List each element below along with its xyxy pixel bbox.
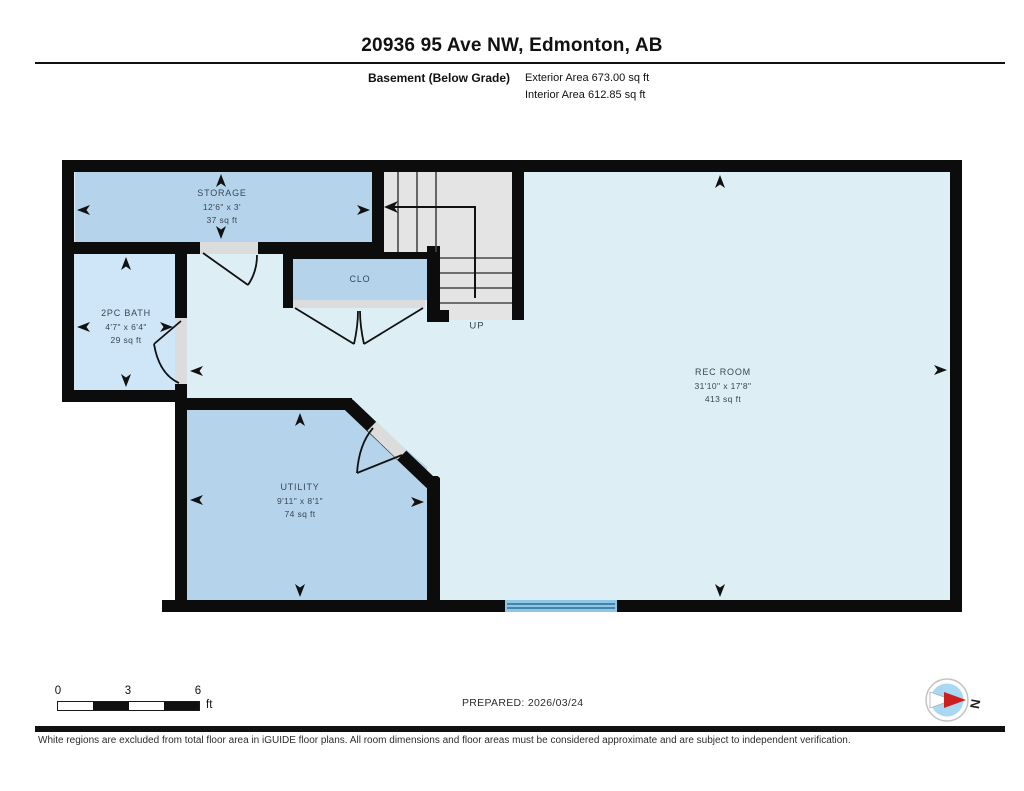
scale-tick-3: 3 bbox=[125, 685, 131, 697]
scale-segment bbox=[93, 702, 128, 710]
wall-utility-top bbox=[187, 398, 352, 410]
wall-storage-right bbox=[372, 172, 384, 242]
rec-room-dims: 31'10" x 17'8" bbox=[695, 381, 752, 391]
header-divider bbox=[35, 62, 1005, 64]
wall-bath-right-upper bbox=[175, 244, 187, 320]
page-title: 20936 95 Ave NW, Edmonton, AB bbox=[0, 35, 1024, 57]
prepared-date: PREPARED: 2026/03/24 bbox=[462, 697, 583, 709]
scale-segment bbox=[129, 702, 164, 710]
wall-stairs-right bbox=[512, 160, 524, 320]
bath-door-opening bbox=[175, 318, 187, 384]
disclaimer-text: White regions are excluded from total fl… bbox=[38, 735, 998, 746]
stairs-upper-floor bbox=[384, 172, 512, 252]
compass-north-letter: N bbox=[967, 698, 983, 710]
scale-segment bbox=[58, 702, 93, 710]
scale-tick-0: 0 bbox=[55, 685, 61, 697]
scale-tick-6: 6 bbox=[195, 685, 201, 697]
floor-plan-page: 20936 95 Ave NW, Edmonton, AB Basement (… bbox=[0, 0, 1024, 791]
closet-name: CLO bbox=[350, 274, 371, 284]
rec-room-name: REC ROOM bbox=[695, 367, 751, 377]
utility-area: 74 sq ft bbox=[284, 509, 315, 519]
utility-name: UTILITY bbox=[280, 482, 319, 492]
storage-door-opening bbox=[200, 242, 258, 254]
bath-label: 2PC BATH 4'7" x 6'4" 29 sq ft bbox=[101, 307, 151, 347]
footer-divider bbox=[35, 726, 1005, 732]
closet-label: CLO bbox=[350, 273, 371, 287]
rec-room-area: 413 sq ft bbox=[705, 394, 741, 404]
wall-closet-left bbox=[283, 252, 293, 308]
rec-room-label: REC ROOM 31'10" x 17'8" 413 sq ft bbox=[695, 366, 752, 406]
scale-unit: ft bbox=[206, 699, 212, 711]
scale-segment bbox=[164, 702, 199, 710]
wall-right bbox=[950, 160, 962, 612]
floor-label: Basement (Below Grade) bbox=[0, 71, 510, 85]
wall-bath-bottom bbox=[62, 390, 187, 402]
wall-utility-left bbox=[175, 402, 187, 600]
stairs-up-label: UP bbox=[469, 321, 484, 332]
floor-plan: STORAGE 12'6" x 3' 37 sq ft 2PC BATH 4'7… bbox=[62, 160, 962, 612]
storage-name: STORAGE bbox=[197, 188, 246, 198]
storage-label: STORAGE 12'6" x 3' 37 sq ft bbox=[197, 187, 246, 227]
wall-closet-top bbox=[283, 252, 440, 259]
interior-area: Interior Area 612.85 sq ft bbox=[525, 89, 645, 101]
wall-bottom bbox=[162, 600, 962, 612]
wall-stairs-stub bbox=[427, 310, 449, 322]
utility-label: UTILITY 9'11" x 8'1" 74 sq ft bbox=[277, 481, 323, 521]
wall-utility-right bbox=[427, 476, 440, 600]
scale-bar bbox=[57, 701, 200, 711]
storage-dims: 12'6" x 3' bbox=[203, 202, 241, 212]
storage-area: 37 sq ft bbox=[206, 215, 237, 225]
wall-left-upper bbox=[62, 160, 74, 402]
closet-door-opening bbox=[293, 300, 425, 308]
compass: N bbox=[908, 672, 1000, 730]
utility-dims: 9'11" x 8'1" bbox=[277, 496, 323, 506]
bath-dims: 4'7" x 6'4" bbox=[105, 322, 147, 332]
bath-area: 29 sq ft bbox=[110, 335, 141, 345]
exterior-area: Exterior Area 673.00 sq ft bbox=[525, 72, 649, 84]
stairs-lower-floor bbox=[440, 246, 512, 320]
bath-name: 2PC BATH bbox=[101, 308, 151, 318]
